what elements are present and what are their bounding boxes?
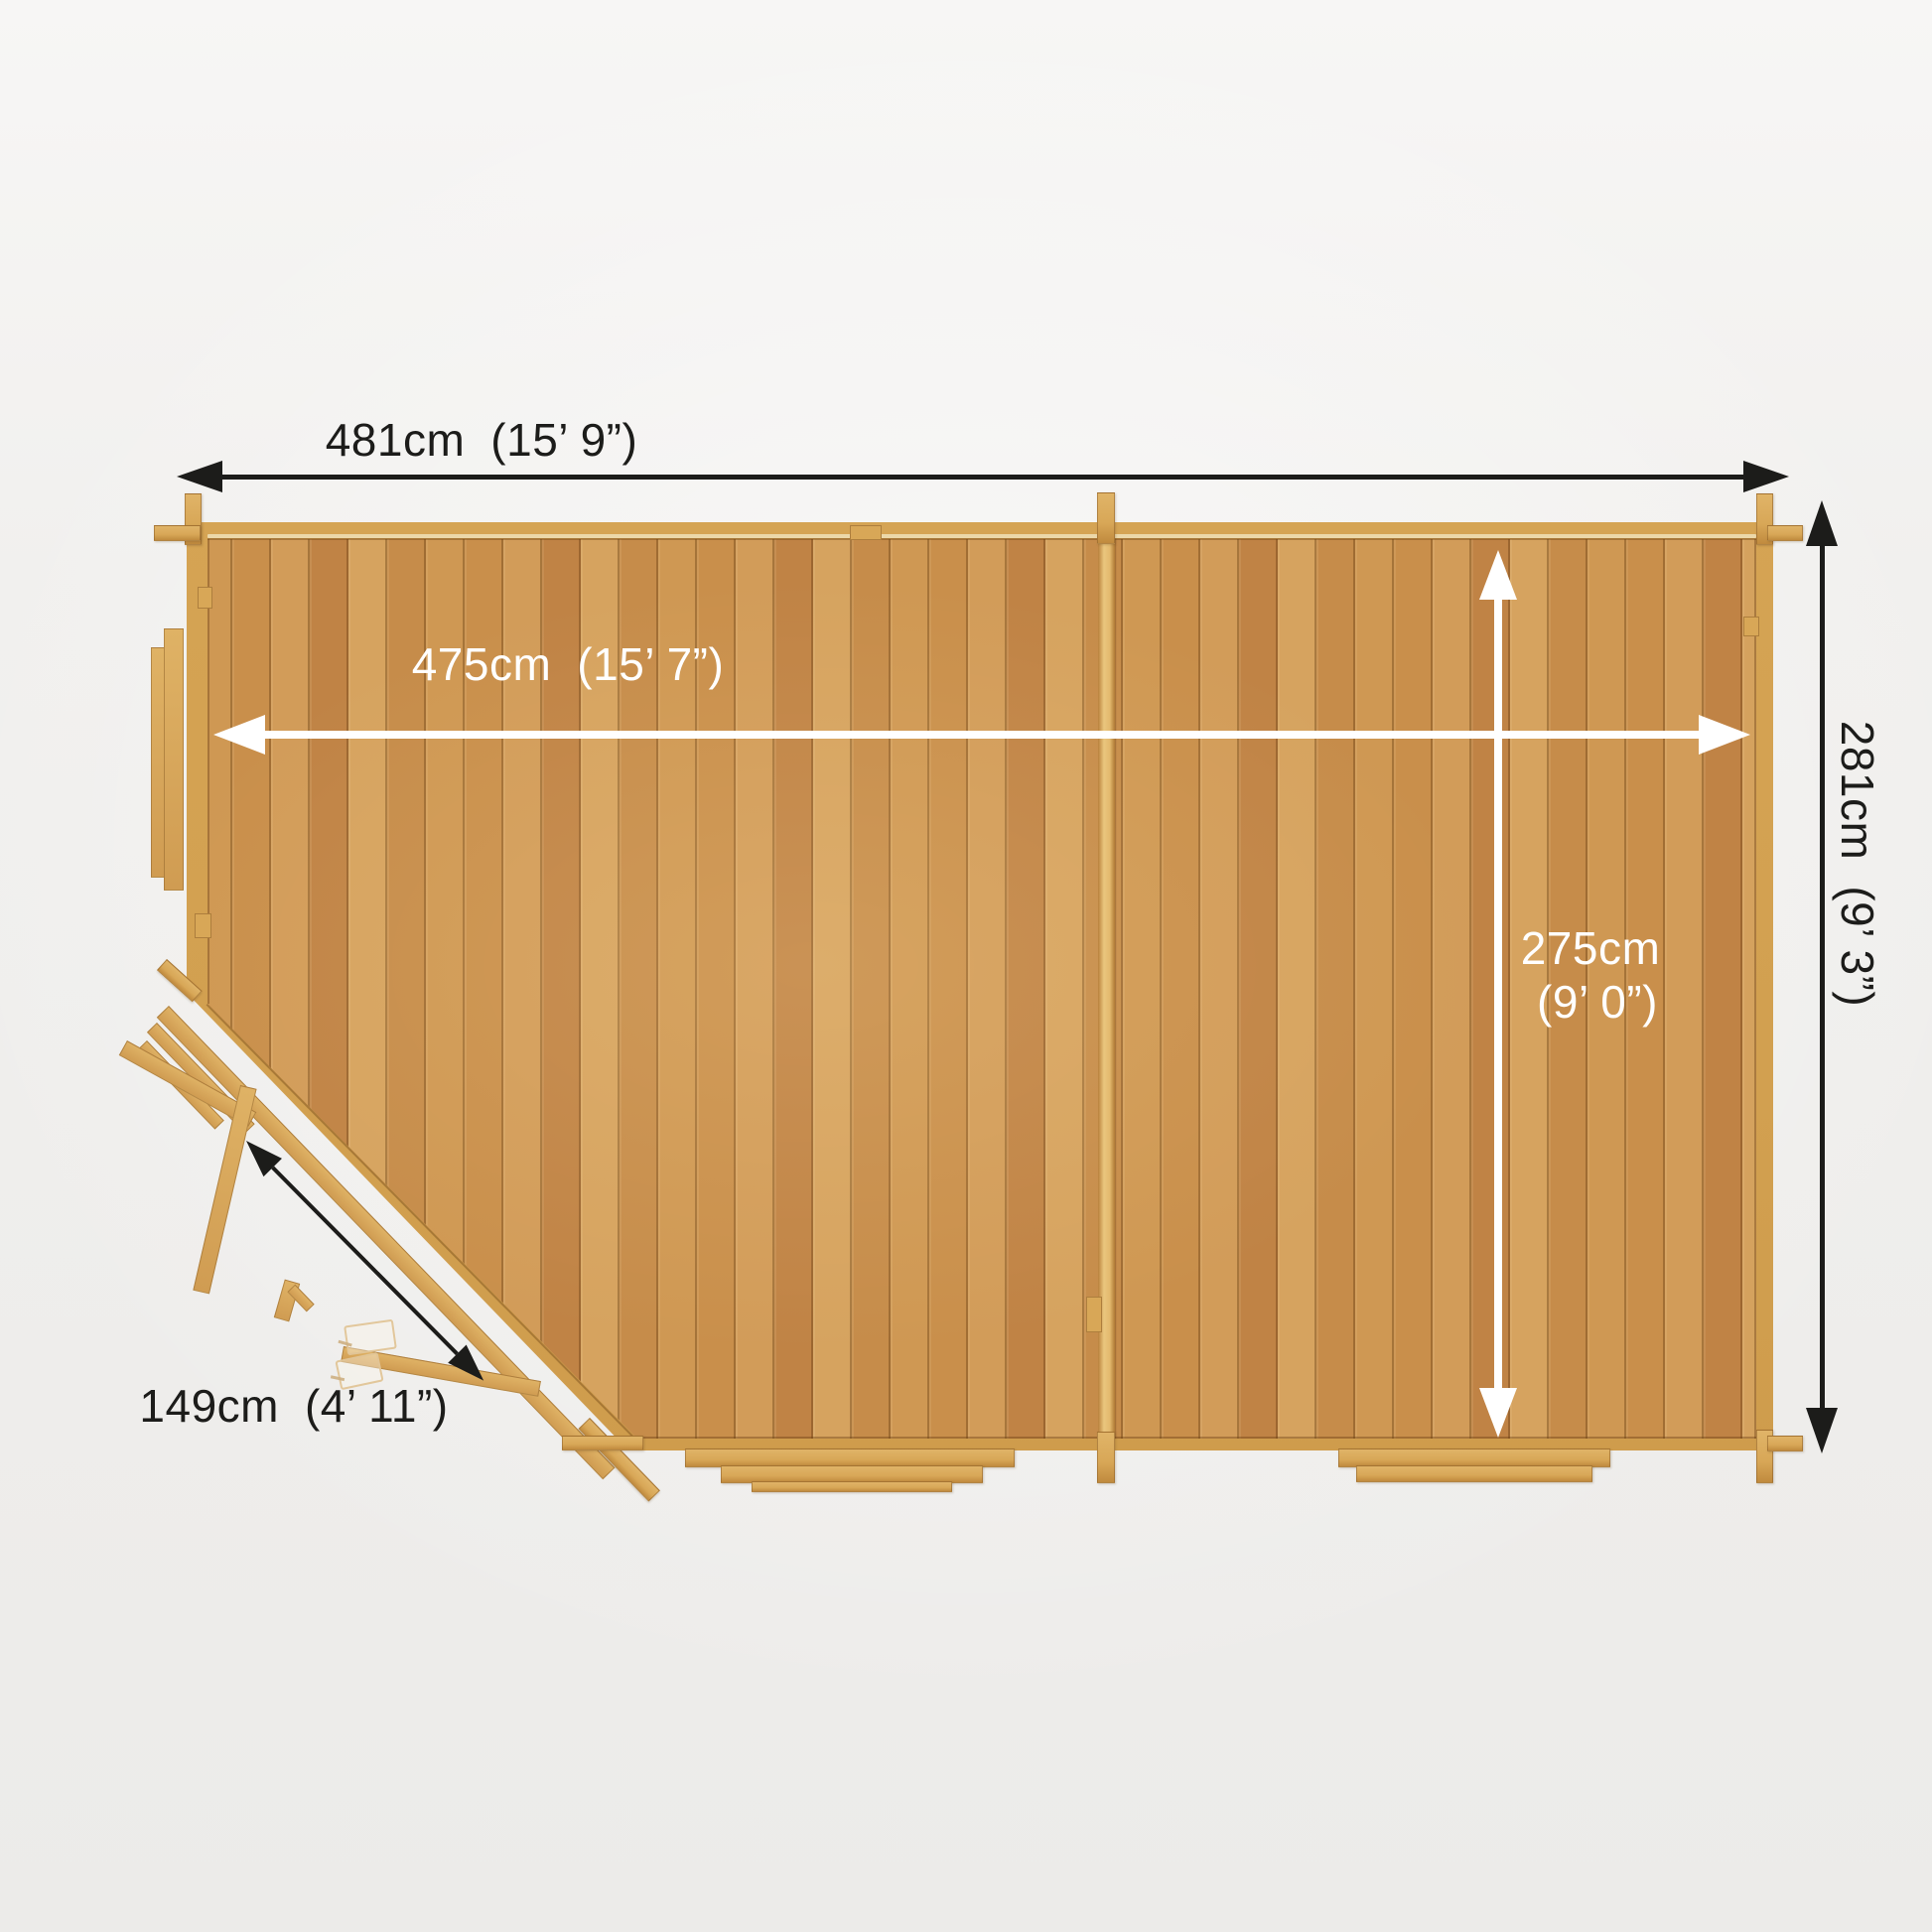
wall-nub [1743, 617, 1759, 636]
door-width-imperial: (4’ 11”) [305, 1380, 449, 1432]
arrow-shaft [265, 731, 1699, 739]
overall-width-metric: 481cm [326, 414, 466, 466]
arrowhead-left-icon [177, 461, 222, 492]
overall-width-imperial: (15’ 9”) [490, 414, 637, 466]
corner-log [154, 525, 201, 541]
internal-width-imperial: (15’ 7”) [577, 638, 724, 690]
door-handle-sketch [344, 1319, 397, 1356]
arrow-shaft [1494, 600, 1502, 1388]
arrowhead-up-icon [1806, 500, 1838, 546]
internal-depth-label: 275cm(9’ 0”) [1521, 921, 1661, 1029]
wall-joint-notch [850, 525, 882, 540]
internal-width-label: 475cm(15’ 7”) [412, 637, 725, 691]
wall-floor-junction-line [637, 1437, 1756, 1439]
arrowhead-down-icon [1479, 1388, 1517, 1438]
corner-log [1767, 525, 1803, 541]
internal-depth-metric: 275cm [1521, 922, 1661, 974]
arrow-shaft [222, 475, 1743, 480]
arrowhead-left-icon [213, 715, 265, 755]
overall-depth-imperial: (9’ 3”) [1832, 886, 1883, 1007]
door-width-label: 149cm(4’ 11”) [139, 1379, 448, 1433]
window-step [752, 1481, 952, 1492]
wall-floor-junction-line [207, 538, 1756, 540]
partition-log-end [1097, 1432, 1115, 1483]
overall-depth-metric: 281cm [1832, 721, 1883, 861]
arrowhead-right-icon [1699, 715, 1750, 755]
arrowhead-up-icon [1479, 550, 1517, 600]
corner-log [1767, 1436, 1803, 1451]
window-step [1356, 1465, 1592, 1482]
side-window-board [164, 628, 184, 891]
internal-depth-imperial: (9’ 0”) [1535, 975, 1661, 1029]
internal-width-metric: 475cm [412, 638, 552, 690]
wall-floor-junction-line [1754, 539, 1756, 1439]
wall-nub [1086, 1297, 1102, 1332]
partition-log-end [1097, 492, 1115, 544]
arrow-shaft [1820, 546, 1825, 1408]
overall-depth-label: 281cm(9’ 3”) [1831, 721, 1884, 1008]
dimension-diagram: 481cm(15’ 9”) 475cm(15’ 7”) 275cm(9’ 0”)… [0, 0, 1932, 1932]
wall-nub [198, 587, 212, 609]
overall-width-label: 481cm(15’ 9”) [326, 413, 638, 467]
arrowhead-down-icon [1806, 1408, 1838, 1453]
door-width-metric: 149cm [139, 1380, 279, 1432]
corner-log [562, 1436, 643, 1450]
wall-nub [195, 913, 211, 938]
arrowhead-right-icon [1743, 461, 1789, 492]
